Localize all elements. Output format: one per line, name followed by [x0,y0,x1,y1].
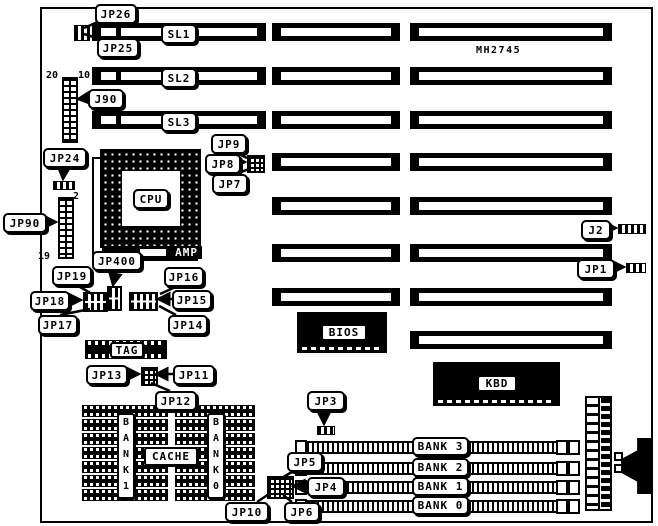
jp90-pin2-label: 2 [73,191,79,202]
callout-jp8: JP8 [205,154,241,174]
callout-jp17: JP17 [38,315,78,335]
cpu-label: CPU [133,189,169,209]
callout-jp25: JP25 [97,38,139,58]
callout-jp14: JP14 [168,315,208,335]
callout-jp5: JP5 [287,452,323,472]
callout-jp10: JP10 [225,502,269,522]
slot-label-sl1: SL1 [161,24,197,44]
motherboard-diagram: MH2745 SL1 SL2 SL3 CPU AMP JP26 JP25 20 … [0,0,658,526]
slot-label-sl3: SL3 [161,112,197,132]
callout-j2: J2 [581,220,611,240]
kbd-label: KBD [477,375,517,392]
part-number: MH2745 [476,45,521,56]
bank0-label: BANK 0 [412,496,469,515]
callout-jp19: JP19 [52,266,92,286]
callout-jp6: JP6 [284,502,320,522]
callout-jp18: JP18 [30,291,70,311]
callout-jp4: JP4 [307,477,345,497]
cache-bank0-label: B A N K 0 [207,413,225,499]
callout-jp13: JP13 [86,365,128,385]
din-notch [614,464,623,473]
callout-jp400: JP400 [92,251,142,271]
callout-jp15: JP15 [172,290,212,310]
bank3-label: BANK 3 [412,437,469,456]
callout-jp90: JP90 [3,213,47,233]
j90-pin10-label: 10 [78,70,90,81]
callout-jp26: JP26 [95,4,137,24]
cache-bank1-label: B A N K 1 [117,413,135,499]
callout-jp11: JP11 [173,365,215,385]
tag-label: TAG [110,342,144,358]
jp90-pin19-label: 19 [38,251,50,262]
callout-jp9: JP9 [211,134,247,154]
callout-jp16: JP16 [164,267,204,287]
callout-jp3: JP3 [307,391,345,411]
callout-jp24: JP24 [43,148,87,168]
callout-j90: J90 [88,89,124,109]
cache-label: CACHE [144,447,198,466]
j90-pin20-label: 20 [46,70,58,81]
bank2-label: BANK 2 [412,458,469,477]
callout-jp1: JP1 [577,259,615,279]
callout-jp7: JP7 [212,174,248,194]
bios-label: BIOS [321,324,367,341]
din-notch [614,452,623,461]
slot-label-sl2: SL2 [161,68,197,88]
callout-jp12: JP12 [155,391,197,411]
bank1-label: BANK 1 [412,477,469,496]
